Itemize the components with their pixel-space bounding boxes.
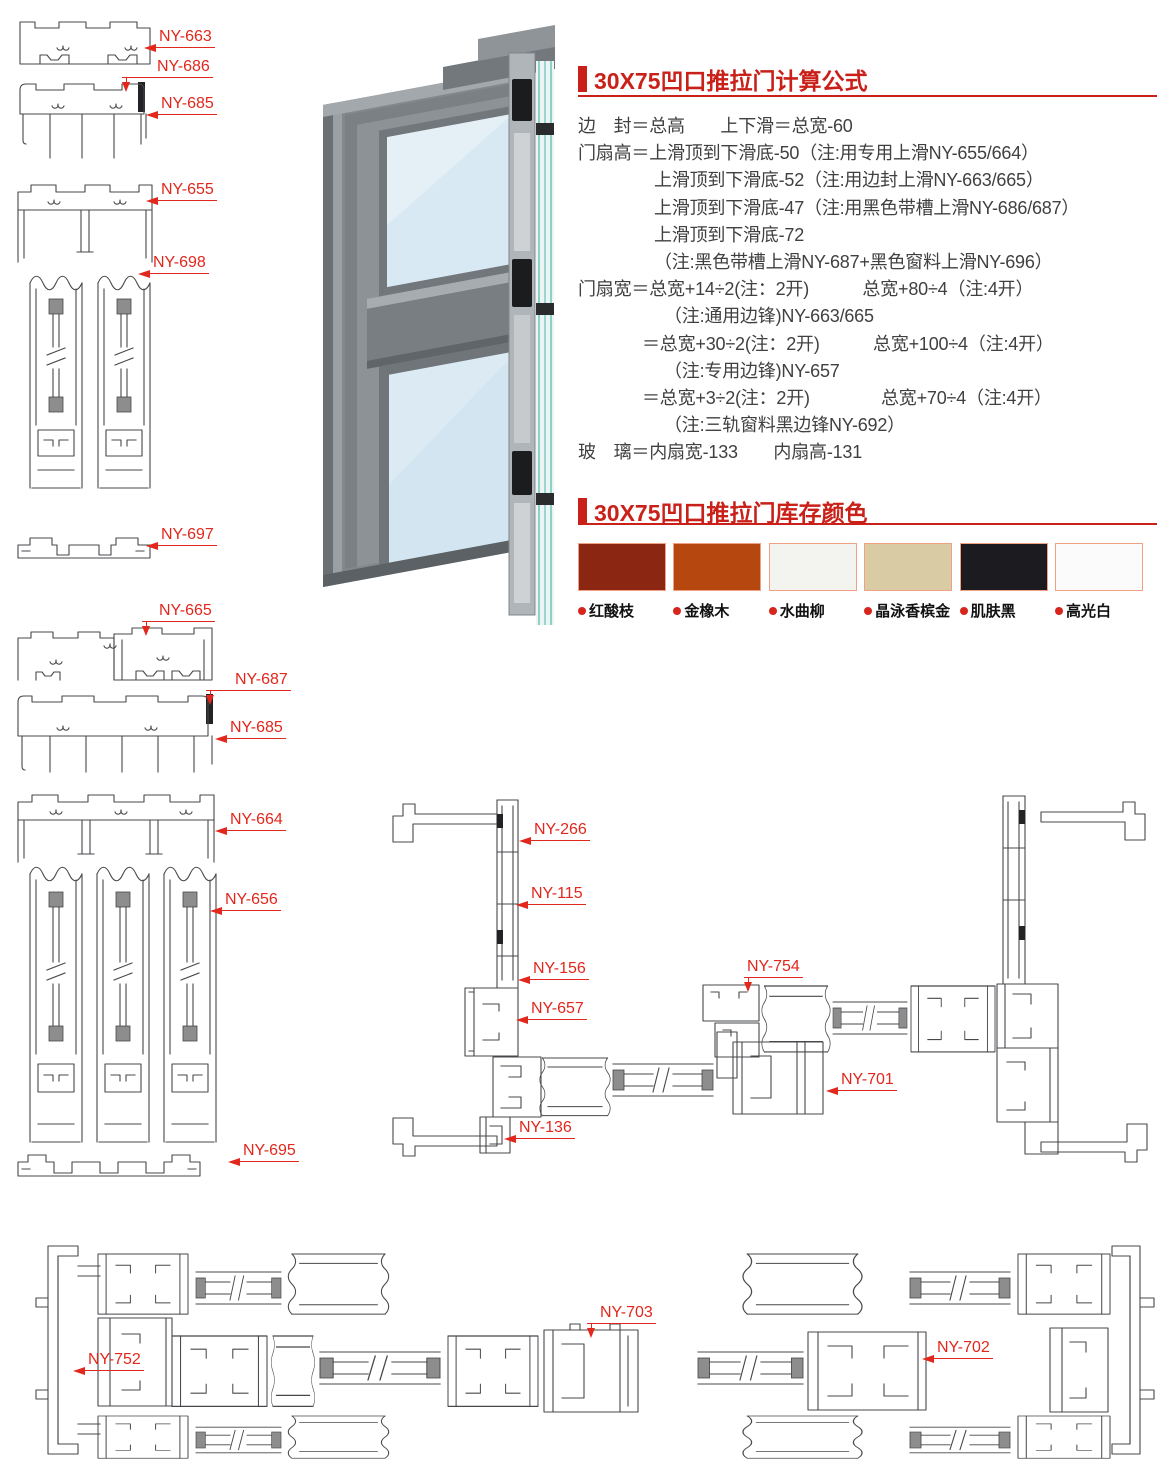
formula-line: （注:三轨窗料黑边锋NY-692） [578,411,1170,438]
callout-ny657: NY-657 [528,999,587,1020]
title-bar-icon [578,66,587,92]
swatch-label: 水曲柳 [780,600,825,621]
bullet-icon [673,607,681,615]
color-swatch: 红酸枝 [578,543,666,621]
swatch-label: 红酸枝 [589,600,634,621]
wall-bracket-bottom-right [1041,1124,1147,1162]
formula-line: 上滑顶到下滑底-52（注:用边封上滑NY-663/665） [578,166,1170,193]
formula-section-title: 30X75凹口推拉门计算公式 [578,62,868,96]
formula-line: 边 封＝总高 上下滑＝总宽-60 [578,112,1170,139]
callout-ny703: NY-703 [587,1303,656,1324]
formula-line: 门扇高＝上滑顶到下滑底-50（注:用专用上滑NY-655/664） [578,139,1170,166]
title-bar-icon [578,498,587,524]
bullet-icon [960,607,968,615]
formula-line: 玻 璃＝内扇宽-133 内扇高-131 [578,438,1170,465]
callout-ny665: NY-665 [142,601,215,622]
swatch-chip [673,543,761,591]
formula-line: 上滑顶到下滑底-72 [578,221,1170,248]
callout-ny663: NY-663 [156,27,215,48]
bullet-icon [864,607,872,615]
color-swatch: 晶泳香槟金 [864,543,952,621]
callout-ny695: NY-695 [240,1141,299,1162]
swatch-chip [1055,543,1143,591]
callout-ny115: NY-115 [528,884,586,905]
swatch-chip [578,543,666,591]
color-swatch: 肌肤黑 [960,543,1048,621]
swatch-label: 金橡木 [684,600,729,621]
profile-ny754-interlock [703,985,759,1057]
catalog-page: 30X75凹口推拉门计算公式 边 封＝总高 上下滑＝总宽-60门扇高＝上滑顶到下… [0,0,1171,1464]
color-swatch: 高光白 [1055,543,1143,621]
callout-ny656: NY-656 [222,890,281,911]
callout-ny697: NY-697 [158,525,217,546]
callout-ny701: NY-701 [838,1070,897,1091]
wall-bracket-top-right [1041,802,1145,840]
callout-ny702: NY-702 [934,1338,993,1359]
swatch-label: 高光白 [1066,600,1111,621]
profile-ny701-box [717,1032,823,1114]
profile-ny664-section [18,795,214,862]
color-swatch: 水曲柳 [769,543,857,621]
formula-title-text: 30X75凹口推拉门计算公式 [594,62,868,96]
wall-bracket-top-left [393,804,497,842]
swatch-chip [864,543,952,591]
callout-ny752: NY-752 [85,1350,144,1371]
formula-line: ＝总宽+3÷2(注：2开) 总宽+70÷4（注:4开） [578,384,1170,411]
profile-ny665-section [114,628,212,680]
callout-ny664: NY-664 [227,810,286,831]
door-cut-section [509,53,554,625]
swatch-label: 肌肤黑 [971,600,1016,621]
callout-ny156: NY-156 [530,959,589,980]
profile-ny655-section [18,185,152,262]
profile-ny695-section [18,1155,200,1176]
right-channel [1003,796,1025,984]
title-underline [578,95,1157,97]
formula-line: （注:通用边锋)NY-663/665 [578,302,1170,329]
formula-line: 上滑顶到下滑底-47（注:用黑色带槽上滑NY-686/687） [578,194,1170,221]
swatch-chip [960,543,1048,591]
bullet-icon [769,607,777,615]
bullet-icon [1055,607,1063,615]
profile-ny115-channel [497,800,518,987]
right-sash-corner [997,984,1058,1048]
formula-line: ＝总宽+30÷2(注：2开) 总宽+100÷4（注:4开） [578,330,1170,357]
swatch-chip [769,543,857,591]
wall-bracket-bottom-left [393,1118,497,1156]
callout-ny685a: NY-685 [158,94,217,115]
callout-ny655: NY-655 [158,180,217,201]
formula-line: （注:专用边锋)NY-657 [578,357,1170,384]
callout-ny754: NY-754 [744,957,803,978]
profile-ny685-ny687-section [18,694,213,772]
callout-ny687: NY-687 [206,670,291,691]
profile-ny685-ny686-section [20,82,146,158]
callout-ny685b: NY-685 [227,718,286,739]
formula-block: 边 封＝总高 上下滑＝总宽-60门扇高＝上滑顶到下滑底-50（注:用专用上滑NY… [578,106,1170,465]
profile-ny657-box [465,988,518,1056]
profile-ny663-left-section [18,632,116,680]
callout-ny266: NY-266 [531,820,590,841]
profile-ny697-section [18,538,150,558]
callout-ny136: NY-136 [516,1118,575,1139]
formula-line: 门扇宽＝总宽+14÷2(注：2开) 总宽+80÷4（注:4开） [578,275,1170,302]
door-frame-3d [323,66,535,587]
door-3d-render [293,25,583,625]
profile-ny702-box [808,1332,926,1410]
callout-ny698: NY-698 [150,253,209,274]
color-swatch: 金橡木 [673,543,761,621]
drawing-horizontal-section-z [385,780,1171,1180]
callout-ny686: NY-686 [122,57,213,78]
bullet-icon [578,607,586,615]
right-lower-box [997,1048,1058,1154]
color-swatch-row: 红酸枝 金橡木 水曲柳 晶泳香槟金 肌肤黑 [578,543,1150,621]
title-underline [578,523,1157,525]
swatch-label: 晶泳香槟金 [875,600,950,621]
formula-line: （注:黑色带槽上滑NY-687+黑色窗料上滑NY-696） [578,248,1170,275]
